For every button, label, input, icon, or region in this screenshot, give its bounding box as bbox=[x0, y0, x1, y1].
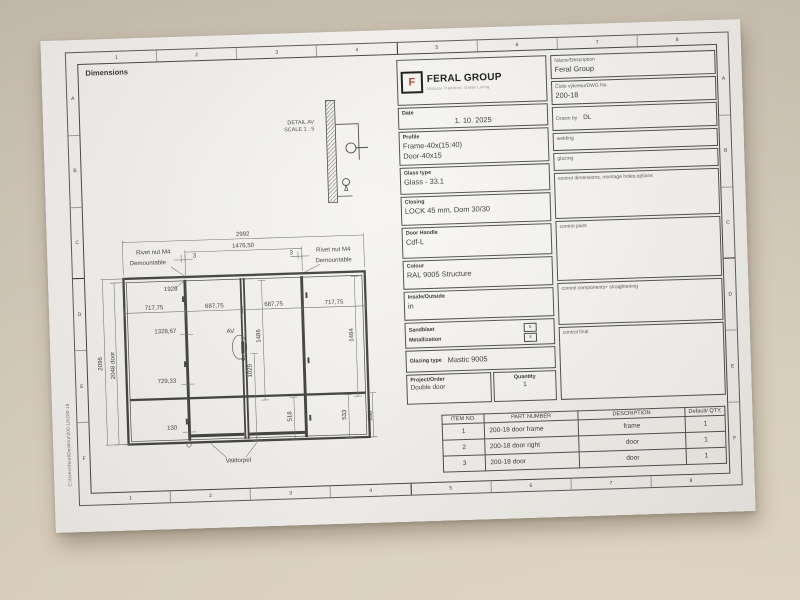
dimension-label: 1484 bbox=[348, 327, 355, 341]
dimension-label: 1486 bbox=[255, 328, 262, 342]
dimension-label: 533 bbox=[341, 409, 348, 420]
parts-table-cell: 1 bbox=[686, 432, 726, 449]
colour-cell: Colour RAL 9005 Structure bbox=[403, 256, 554, 290]
glazing-type-value: Mastic 9005 bbox=[448, 355, 488, 365]
parts-table-cell: 200-18 door bbox=[486, 452, 580, 471]
dwg-number-cell: Číslo výkresu/DWG No. 200-18 bbox=[551, 76, 717, 105]
dimension-label: 130 bbox=[167, 425, 178, 432]
drawn-by-value: DL bbox=[583, 114, 591, 122]
dimension-label: Demountable bbox=[130, 259, 167, 267]
inside-outside-cell: Inside/Outside in bbox=[404, 287, 555, 321]
logo-tagline: Natural Tradition, Great Living bbox=[427, 83, 502, 90]
dimension-label: 717,75 bbox=[325, 299, 344, 307]
zone-marker-letter: C bbox=[721, 187, 734, 259]
dimension-label: 3 bbox=[193, 252, 197, 259]
zone-marker-letter: E bbox=[726, 331, 739, 403]
checklist-control-components: control components+ straightening bbox=[557, 278, 723, 325]
logo-letter: F bbox=[408, 77, 415, 88]
checklist-glazing: glazing bbox=[553, 148, 718, 171]
dimension-label: Demountable bbox=[315, 256, 352, 264]
dimension-label: 1029 bbox=[247, 363, 254, 377]
drawn-by-label: Drawn by bbox=[556, 115, 577, 122]
dimension-label: Rivet nut M4 bbox=[136, 248, 171, 256]
parts-table-cell: 1 bbox=[442, 423, 485, 440]
zone-marker-letter: A bbox=[717, 44, 730, 116]
glass-type-cell: Glass type Glass - 33.1 bbox=[400, 163, 551, 195]
drawing-frame: Dimensions bbox=[77, 44, 730, 494]
zone-marker-letter: D bbox=[724, 259, 737, 331]
sheet-border: 12345678 12345678 ABCDEF ABCDEF Dimensio… bbox=[65, 31, 743, 506]
dimension-label: 1476,50 bbox=[232, 242, 255, 250]
parts-table-cell: 2 bbox=[443, 439, 486, 456]
checklist-welding: welding bbox=[553, 128, 718, 151]
checklist-control-paint: control paint bbox=[555, 216, 722, 281]
zone-marker-letter: B bbox=[719, 115, 732, 187]
door-elevation-drawing: 29921476,5033Rivet nut M4DemountableRive… bbox=[87, 219, 411, 481]
glazing-type-label: Glazing type bbox=[410, 357, 442, 364]
dimension-label: 729,33 bbox=[157, 378, 176, 386]
detail-av-svg bbox=[269, 96, 373, 217]
dimension-label: 2096 bbox=[97, 356, 104, 370]
metallization-label: Metallization bbox=[409, 336, 442, 343]
logo-cell: F FERAL GROUP Natural Tradition, Great L… bbox=[396, 55, 547, 106]
logo-name: FERAL GROUP bbox=[427, 71, 502, 84]
dimension-label: 2992 bbox=[236, 231, 250, 238]
sandblast-label: Sandblast bbox=[409, 327, 435, 334]
dimension-label: 717,75 bbox=[145, 304, 164, 312]
desk-surface: C:\Users\feral\Desktop\200-18\200-18 123… bbox=[0, 0, 800, 600]
dimension-label: 550 bbox=[367, 410, 374, 421]
sandblast-checkbox: x bbox=[524, 322, 537, 331]
parts-table-cell: door bbox=[579, 449, 687, 468]
date-cell: Date 1. 10. 2025 bbox=[398, 103, 549, 130]
dimension-label: 687,75 bbox=[205, 302, 224, 310]
dimension-label: 3 bbox=[289, 249, 293, 256]
drawn-by-cell: Drawn by DL bbox=[552, 102, 718, 131]
title-block: F FERAL GROUP Natural Tradition, Great L… bbox=[396, 50, 726, 407]
dimension-label: 1928 bbox=[164, 286, 178, 293]
door-handle-cell: Door Handle Cdf-L bbox=[401, 223, 552, 259]
project-order-cell: Project/Order Double door bbox=[406, 372, 492, 405]
parts-table-cell: 1 bbox=[686, 448, 726, 465]
dimension-label: 2048 door bbox=[109, 352, 117, 380]
quantity-value: 1 bbox=[497, 380, 552, 390]
description-cell: Názov/Description Feral Group bbox=[550, 50, 716, 79]
feral-logo-icon: F bbox=[401, 71, 424, 94]
dimension-labels: 29921476,5033Rivet nut M4DemountableRive… bbox=[93, 227, 375, 469]
dimension-label: 518 bbox=[286, 411, 293, 422]
dimension-lines bbox=[99, 233, 378, 462]
zone-marker-letter: F bbox=[728, 402, 741, 473]
glazing-type-cell: Glazing type Mastic 9005 bbox=[405, 346, 556, 373]
detail-av-drawing: DETAIL AV SCALE 1 : 5 bbox=[269, 96, 373, 217]
checklist-control-final: control final bbox=[559, 322, 726, 400]
checklist-control-dimensions: control dimensions, montage holes,option… bbox=[554, 168, 720, 219]
profile-section bbox=[325, 100, 337, 202]
closing-cell: Closing LOCK 45 mm, Dom 30/30 bbox=[401, 192, 552, 226]
dimension-label: 687,75 bbox=[264, 301, 283, 309]
sheet-title: Dimensions bbox=[85, 67, 128, 77]
dimension-label: AV bbox=[227, 328, 236, 335]
file-path-note: C:\Users\feral\Desktop\200-18\200-18 bbox=[65, 403, 73, 486]
handle-rose bbox=[346, 143, 356, 153]
profile-cell: Profile Frame-40x(15:40) Door-40x15 bbox=[398, 127, 549, 166]
quantity-cell: Quantity 1 bbox=[493, 370, 557, 402]
elevation-svg: 29921476,5033Rivet nut M4DemountableRive… bbox=[87, 219, 411, 481]
parts-table-cell: 3 bbox=[443, 455, 486, 472]
drawing-sheet: C:\Users\feral\Desktop\200-18\200-18 123… bbox=[40, 19, 755, 533]
dimension-label: Valdorpel bbox=[226, 457, 252, 465]
dimension-label: Rivet nut M4 bbox=[316, 246, 351, 254]
sandblast-cell: Sandblast x Metallization x bbox=[404, 318, 555, 349]
metallization-checkbox: x bbox=[524, 332, 537, 341]
parts-table-cell: 1 bbox=[685, 416, 725, 433]
parts-table: ITEM NO.PART NUMBERDESCRIPTIONDefault/ Q… bbox=[441, 406, 727, 473]
project-order-value: Double door bbox=[410, 382, 487, 392]
dimension-label: 1328,67 bbox=[154, 328, 177, 336]
